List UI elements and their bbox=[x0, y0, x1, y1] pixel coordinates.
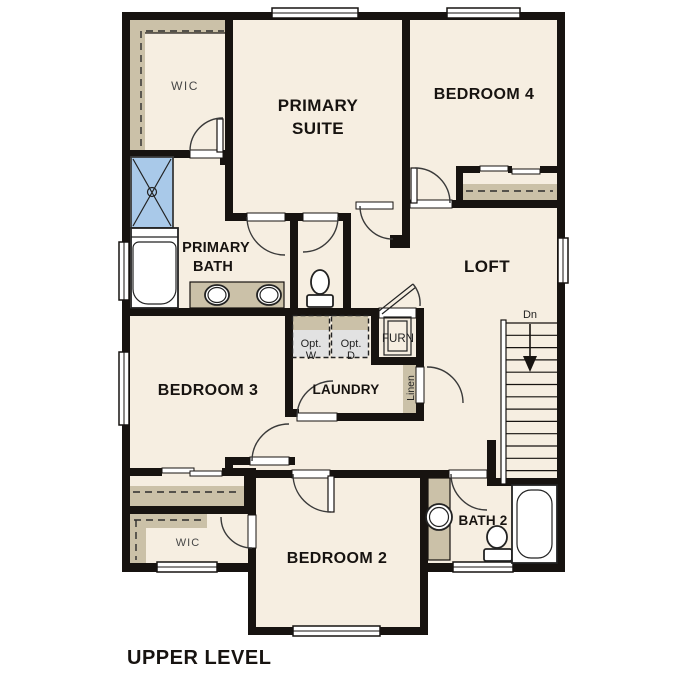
room-label-primary-bath-line1: PRIMARY bbox=[182, 240, 250, 256]
bedroom4-closet-shelf bbox=[462, 184, 557, 202]
wic-upper-shelf-left bbox=[128, 18, 145, 151]
linen-door-opening bbox=[416, 367, 424, 403]
primary-suite-door-leaf bbox=[356, 202, 393, 209]
stairs-down-label: Dn bbox=[523, 309, 537, 321]
page-title: UPPER LEVEL bbox=[127, 647, 271, 669]
primary-bath-door-opening bbox=[247, 213, 285, 221]
bedroom3-door-opening bbox=[250, 457, 289, 465]
bedroom4-closet-slider-right bbox=[512, 169, 540, 174]
window-bath2-bottom bbox=[453, 562, 513, 572]
opt-washer-label-line1: Opt. bbox=[301, 338, 322, 350]
window-bedroom2-bottom bbox=[293, 626, 380, 636]
room-label-primary-suite-line1: PRIMARY bbox=[278, 96, 359, 115]
bath2-bathtub bbox=[512, 485, 557, 563]
toilet-room-door-opening bbox=[303, 213, 338, 221]
bath2-door-opening bbox=[449, 470, 487, 478]
room-label-wic-lower: WIC bbox=[176, 537, 200, 549]
window-bedroom4-top bbox=[447, 8, 520, 18]
room-label-bedroom4: BEDROOM 4 bbox=[434, 86, 535, 103]
opt-washer-label-line2: W bbox=[306, 350, 317, 362]
linen-label: Linen bbox=[405, 375, 417, 401]
room-label-loft: LOFT bbox=[464, 257, 510, 276]
window-wic-lower-bottom bbox=[157, 562, 217, 572]
bedroom3-closet-slider-left bbox=[162, 468, 194, 473]
bath2-sink bbox=[426, 504, 452, 530]
room-label-primary-bath-line2: BATH bbox=[193, 259, 233, 275]
primary-bathtub bbox=[131, 228, 178, 308]
furnace-label: FURN bbox=[382, 333, 414, 345]
window-primary-suite-top bbox=[272, 8, 358, 18]
room-label-primary-suite-line2: SUITE bbox=[292, 119, 344, 138]
opt-dryer-label-line1: Opt. bbox=[341, 338, 362, 350]
bedroom2-floor-extension bbox=[248, 560, 428, 635]
shower bbox=[131, 157, 173, 228]
wic-upper-door-leaf bbox=[217, 119, 223, 152]
opt-dryer-label-line2: D bbox=[347, 350, 355, 362]
upper-level-floor-plan: WIC PRIMARY SUITE BEDROOM 4 PRIMARY BATH… bbox=[0, 0, 687, 687]
bedroom3-closet-slider-right bbox=[190, 471, 222, 476]
bedroom2-door-leaf bbox=[328, 476, 334, 512]
primary-sink-right bbox=[257, 285, 281, 305]
bedroom4-closet-slider-left bbox=[480, 166, 508, 171]
wic-lower-door-opening bbox=[248, 515, 256, 548]
window-primary-bath-left bbox=[119, 242, 129, 300]
stair-rail bbox=[501, 320, 506, 484]
wic-lower-shelf-left bbox=[130, 514, 146, 563]
window-bedroom3-left bbox=[119, 352, 129, 425]
room-label-bedroom2: BEDROOM 2 bbox=[287, 550, 388, 567]
bedroom2-door-opening bbox=[292, 470, 330, 478]
room-label-bedroom3: BEDROOM 3 bbox=[158, 382, 259, 399]
room-label-laundry: LAUNDRY bbox=[313, 382, 380, 397]
room-label-bath2: BATH 2 bbox=[459, 513, 508, 528]
bedroom4-door-leaf bbox=[411, 168, 417, 203]
primary-sink-left bbox=[205, 285, 229, 305]
bedroom3-closet-shelf bbox=[130, 486, 244, 506]
laundry-door-opening bbox=[297, 413, 337, 421]
room-label-wic-upper: WIC bbox=[171, 79, 199, 93]
floor-plan-page: WIC PRIMARY SUITE BEDROOM 4 PRIMARY BATH… bbox=[0, 0, 687, 687]
window-loft-right bbox=[558, 238, 568, 283]
